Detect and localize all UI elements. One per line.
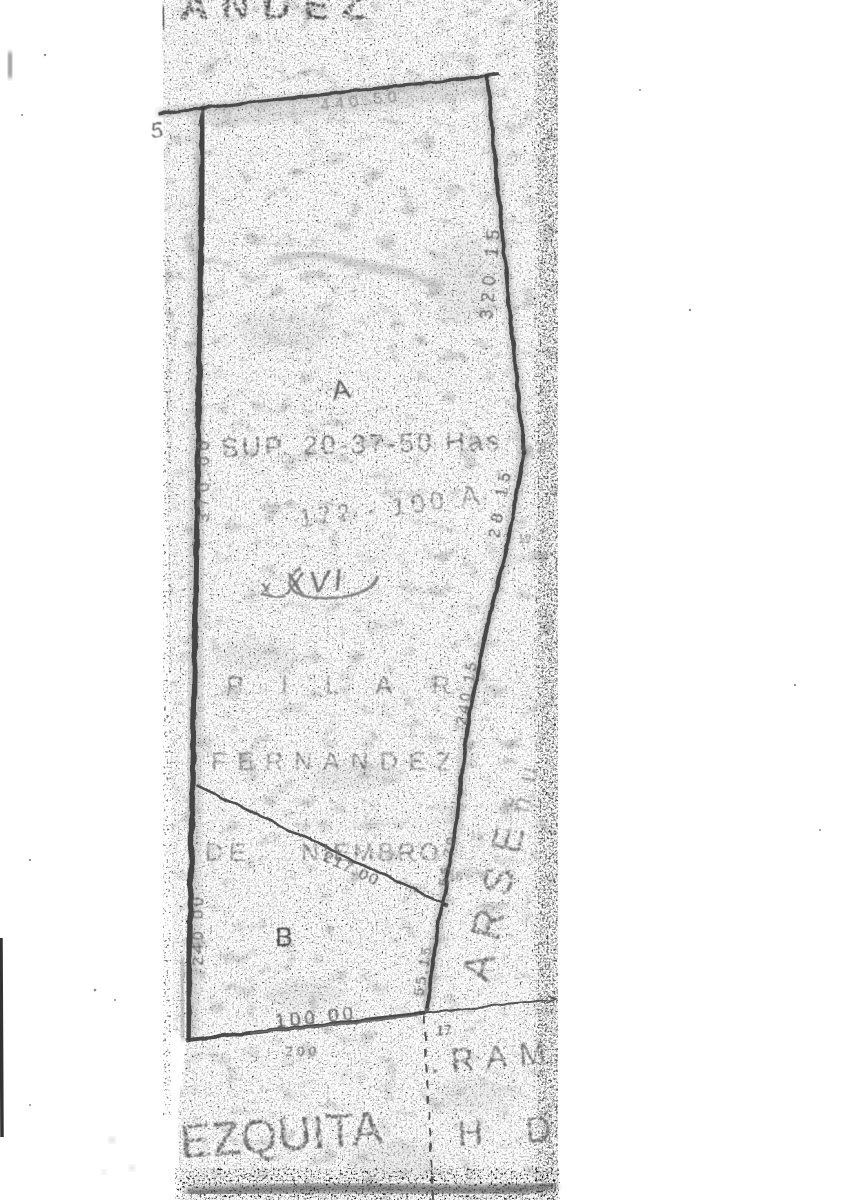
svg-text:370.00: 370.00 <box>194 435 213 523</box>
svg-text:19: 19 <box>518 532 532 546</box>
svg-text:H D: H D <box>456 1107 568 1154</box>
svg-text:XVI: XVI <box>282 562 348 602</box>
svg-text:17: 17 <box>436 1022 452 1038</box>
svg-text:20: 20 <box>536 439 552 455</box>
svg-text:5: 5 <box>151 118 163 143</box>
svg-text:15: 15 <box>470 829 484 843</box>
svg-text:ANDEZ: ANDEZ <box>180 0 378 28</box>
svg-text:200: 200 <box>285 1043 320 1059</box>
svg-text:DE: DE <box>205 839 252 867</box>
svg-text:16: 16 <box>449 870 463 884</box>
svg-text:B: B <box>275 922 293 952</box>
svg-text:240.00: 240.00 <box>190 893 207 966</box>
